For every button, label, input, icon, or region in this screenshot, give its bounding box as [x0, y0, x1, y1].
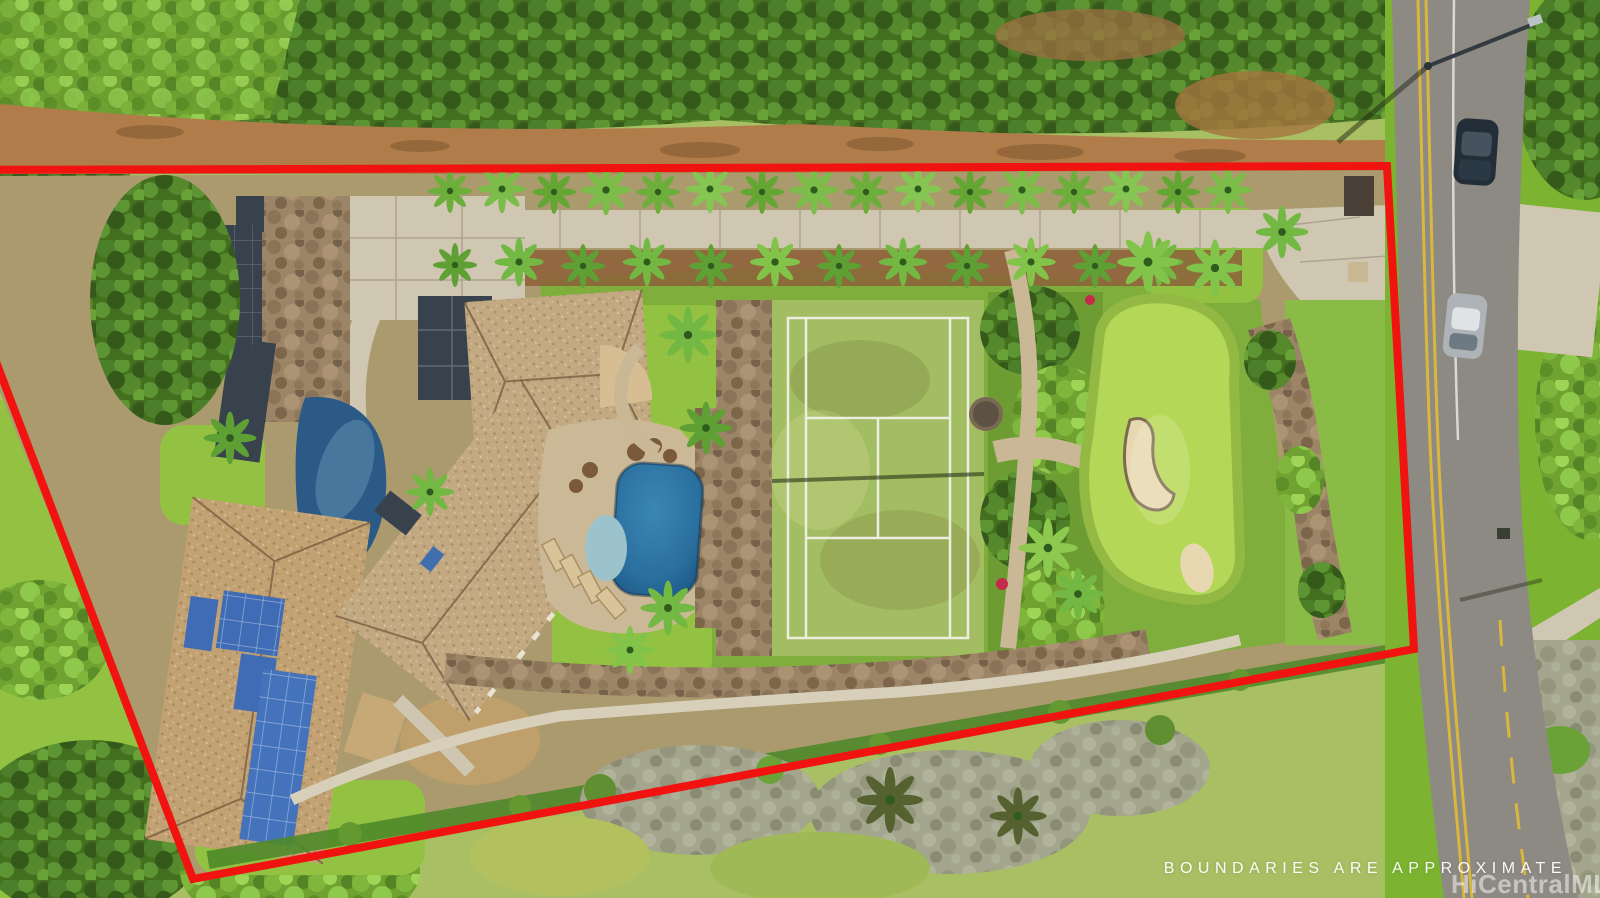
tree-mass-left: [90, 175, 240, 425]
swimming-pool: [609, 461, 704, 599]
tennis-court: [770, 300, 984, 656]
garden-fountain: [971, 399, 1001, 429]
road-sign: [1497, 528, 1510, 539]
parked-sedan: [1442, 292, 1488, 360]
mls-watermark: HiCentralMLS: [1451, 869, 1600, 898]
aerial-photo: BOUNDARIES ARE APPROXIMATE HiCentralMLS: [0, 0, 1600, 898]
flowering-shrub: [1085, 295, 1095, 305]
entry-pillar: [1344, 176, 1374, 216]
putting-green-area: [1084, 298, 1240, 600]
entry-pad: [1348, 262, 1368, 282]
tree-canopy-light: [0, 0, 300, 123]
rock-wall-strip: [716, 300, 774, 656]
flowering-shrub: [996, 578, 1008, 590]
canopy-dirt-gap: [1175, 71, 1335, 139]
palm-shadow: [989, 787, 1046, 844]
canopy-dirt-gap: [995, 9, 1185, 61]
palm-shadow: [857, 767, 923, 833]
aerial-scene: [0, 0, 1600, 898]
parked-suv: [1453, 118, 1500, 187]
